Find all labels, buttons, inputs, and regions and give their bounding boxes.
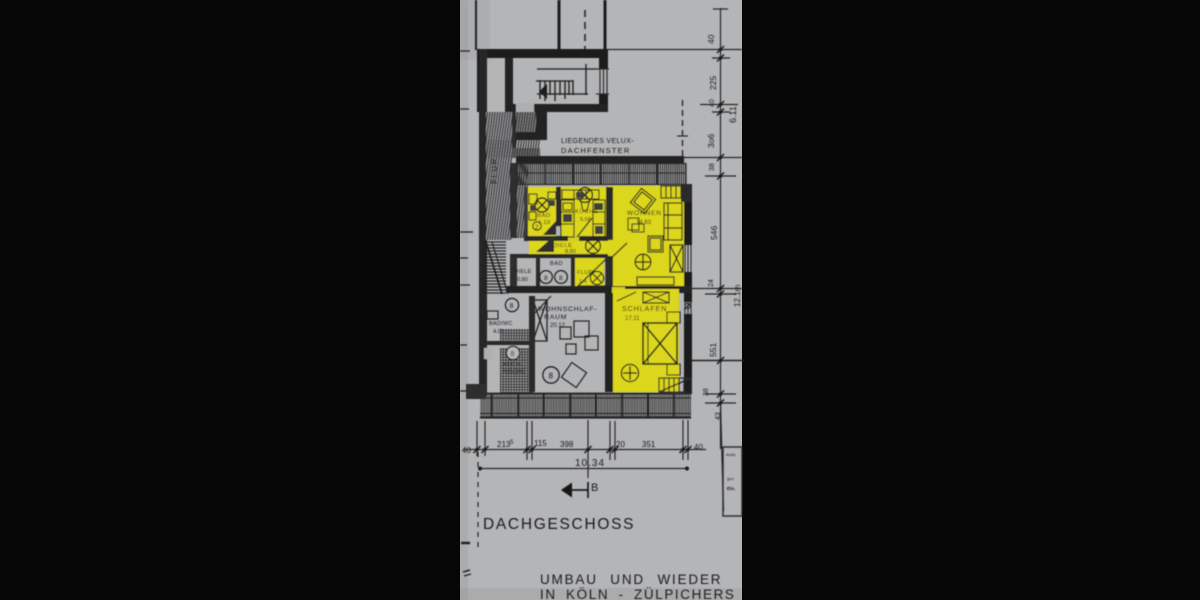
svg-text:8.80: 8.80 [565,249,576,255]
svg-text:40: 40 [706,34,716,44]
svg-text:8: 8 [549,372,554,381]
svg-text:SCHLAFEN: SCHLAFEN [622,306,667,313]
svg-text:LIEGENDES VELUX-: LIEGENDES VELUX- [561,138,634,145]
svg-text:1.4: 1.4 [579,279,587,285]
svg-text:KOCH-: KOCH- [503,362,522,368]
svg-text:3o6: 3o6 [706,134,716,148]
svg-text:4.10: 4.10 [538,220,551,226]
svg-text:8: 8 [510,303,514,310]
svg-text:8: 8 [511,351,515,358]
svg-text:8: 8 [559,275,563,282]
svg-text:43: 43 [715,412,722,420]
svg-text:14,63: 14,63 [636,220,652,226]
svg-text:0.80: 0.80 [517,277,528,283]
svg-text:38: 38 [709,163,716,171]
svg-text:213: 213 [497,440,511,449]
svg-text:12.1m: 12.1m [733,284,742,307]
svg-text:IN KÖLN - ZÜLPICHERS: IN KÖLN - ZÜLPICHERS [540,587,736,600]
svg-text:BAD/WC: BAD/WC [489,321,513,327]
svg-text:6.11: 6.11 [728,106,738,123]
svg-text:8: 8 [544,275,548,282]
svg-text:DIELE: DIELE [514,269,532,275]
svg-text:UMBAU UND WIEDER: UMBAU UND WIEDER [540,572,722,587]
svg-text:115: 115 [534,439,547,448]
svg-text:5.56: 5.56 [580,217,591,223]
svg-text:17.11: 17.11 [625,316,640,322]
svg-text:NISCHE: NISCHE [503,369,525,375]
svg-text:20.12: 20.12 [550,323,566,329]
svg-text:gez.: gez. [727,476,735,481]
svg-text:551: 551 [708,343,718,357]
svg-text:BAD: BAD [550,261,563,267]
svg-text:40: 40 [462,446,471,455]
svg-text:546: 546 [709,226,719,240]
svg-text:351: 351 [642,440,656,449]
svg-text:B: B [591,482,598,494]
svg-text:DACHFENSTER: DACHFENSTER [561,146,630,155]
svg-text:BAD: BAD [537,213,551,219]
svg-text:WOHNEN: WOHNEN [627,210,662,217]
svg-text:DACHGESCHOSS: DACHGESCHOSS [483,516,635,533]
svg-text:FLUR: FLUR [490,157,499,184]
svg-text:38: 38 [703,388,710,396]
svg-text:225: 225 [708,76,718,90]
svg-text:398: 398 [560,440,574,449]
svg-text:40: 40 [694,443,703,452]
svg-text:20: 20 [616,440,625,449]
svg-text:40: 40 [709,99,716,107]
svg-text:Aufst.: Aufst. [726,452,736,457]
svg-text:10.34: 10.34 [575,458,605,469]
svg-text:Ein.: Ein. [727,486,735,491]
svg-text:KÜCHE: KÜCHE [575,208,598,215]
svg-text:24: 24 [708,279,715,287]
